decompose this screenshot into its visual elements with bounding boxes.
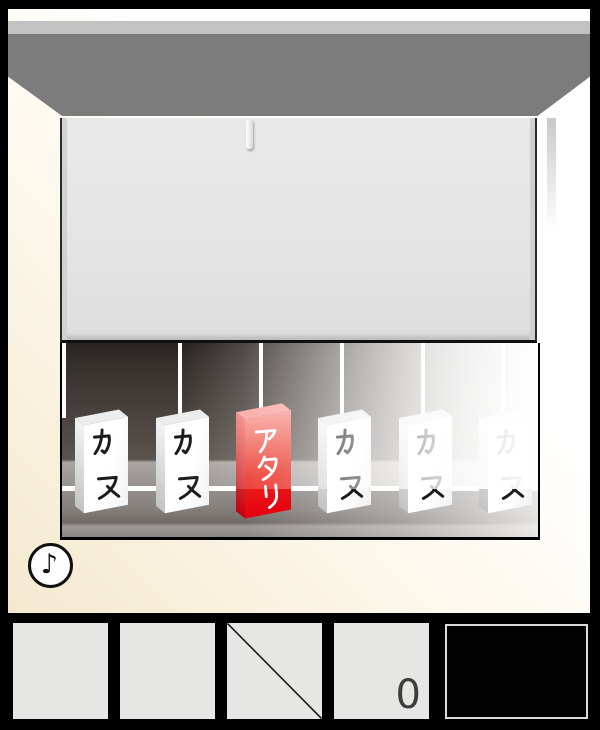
projection-screen[interactable] (60, 118, 537, 343)
coin-counter: 0 (396, 675, 421, 715)
item-slot-2[interactable] (120, 623, 215, 719)
diagonal-cross-icon (227, 623, 322, 719)
music-note-icon: ♪ (41, 551, 58, 578)
sound-toggle-button[interactable]: ♪ (28, 543, 73, 588)
item-slot-3-crossed[interactable] (227, 623, 322, 719)
fog-overlay (62, 343, 538, 489)
item-slot-1[interactable] (13, 623, 108, 719)
display-panel[interactable] (445, 624, 588, 719)
game-area: ♪ (8, 9, 590, 613)
lottery-scene (60, 343, 540, 540)
ceiling-beam (8, 34, 590, 116)
item-slot-4-counter[interactable]: 0 (334, 623, 429, 719)
wall-shadow (547, 118, 556, 230)
screen-pull-handle[interactable] (246, 119, 253, 149)
ceiling-top-edge (8, 21, 590, 34)
